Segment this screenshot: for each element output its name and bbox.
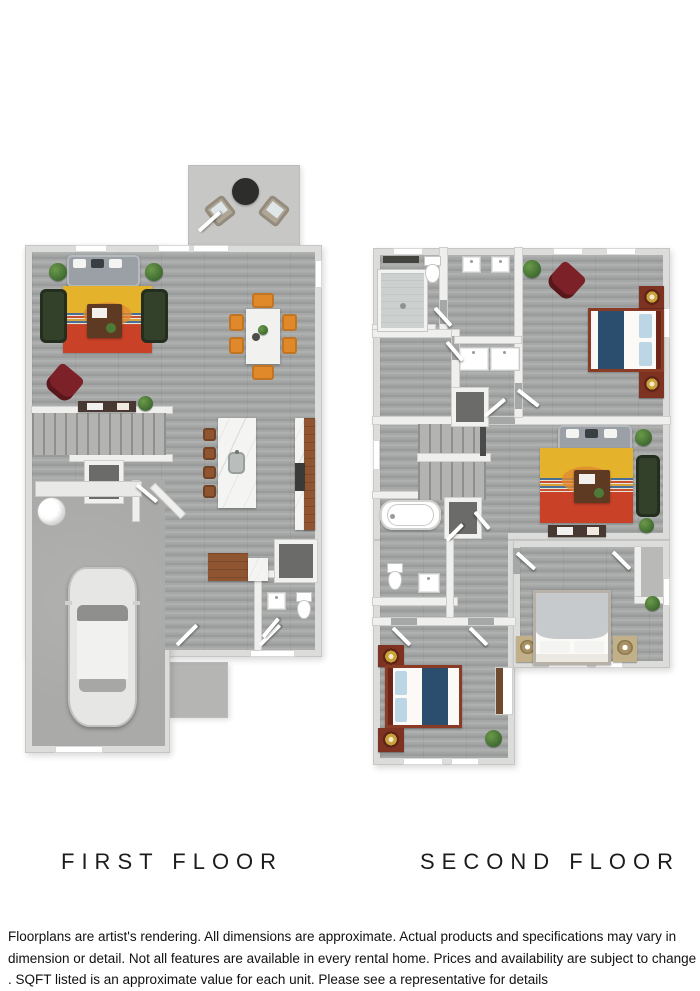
plant <box>635 429 652 446</box>
dining-chair <box>229 314 244 331</box>
window <box>606 248 636 255</box>
pantry <box>275 540 317 582</box>
sofa-pillow <box>91 259 104 268</box>
dryer <box>490 347 520 371</box>
window <box>75 245 107 252</box>
armchair-left <box>40 289 67 343</box>
window <box>315 260 322 288</box>
car-windshield <box>77 605 128 621</box>
bed-pillow <box>540 641 570 653</box>
garage-shelf <box>35 481 142 497</box>
bedroom3-bed <box>385 665 462 728</box>
window <box>553 248 583 255</box>
plant <box>639 518 654 533</box>
plant <box>485 730 502 747</box>
nightstand <box>613 636 637 662</box>
loft-coffee-table <box>574 470 610 503</box>
sofa-pillow <box>73 259 86 268</box>
master-toilet <box>424 256 441 284</box>
kitchen-cabinets <box>304 418 315 530</box>
plant <box>145 263 163 281</box>
living-room-sofa <box>67 255 140 287</box>
disclaimer-text: Floorplans are artist's rendering. All d… <box>8 926 696 991</box>
island-sink <box>228 452 245 474</box>
window <box>403 758 443 765</box>
car <box>68 567 137 727</box>
disclaimer-line-1: Floorplans are artist's rendering. All d… <box>8 926 696 948</box>
disclaimer-line-2: dimension or detail. Not all features ar… <box>8 948 696 970</box>
wall-powder-left <box>255 577 261 650</box>
sofa-pillow <box>109 259 122 268</box>
bathtub <box>380 500 441 530</box>
window <box>663 308 670 338</box>
first-floor-label: FIRST FLOOR <box>61 849 283 875</box>
car-rear-window <box>79 679 126 692</box>
vanity-sink <box>462 256 481 273</box>
wall-hall <box>447 540 453 620</box>
bar-stool <box>203 428 216 441</box>
master-bed <box>588 308 664 372</box>
window <box>663 578 670 606</box>
stair-post <box>480 424 486 456</box>
armchair-right <box>141 289 168 343</box>
bedroom2-bed <box>533 590 611 665</box>
powder-sink <box>267 592 286 610</box>
wall-master-horizontal <box>373 417 670 424</box>
linen-closet-upper <box>452 388 488 426</box>
sofa-pillow <box>604 429 617 438</box>
powder-toilet <box>296 592 312 620</box>
desk-cabinet <box>208 553 248 581</box>
first-floor-plan <box>25 165 322 755</box>
window <box>250 650 295 657</box>
plant <box>523 260 541 278</box>
bed-blanket <box>422 668 448 725</box>
patio-chair-right <box>257 194 291 228</box>
sofa-pillow <box>566 429 579 438</box>
dining-table <box>246 309 280 364</box>
bed-pillow <box>395 671 407 695</box>
table-plant <box>258 325 268 335</box>
walk-in-shower <box>378 270 427 331</box>
bath-counter <box>383 256 419 263</box>
bed-blanket <box>536 593 608 639</box>
bed-headboard <box>656 311 661 369</box>
bed-pillow <box>395 698 407 722</box>
bar-stool <box>203 466 216 479</box>
coffee-table <box>87 304 122 338</box>
opening-bedroom3-door <box>391 618 417 625</box>
car-roof <box>77 621 128 679</box>
toilet-bowl <box>297 600 310 620</box>
plant <box>138 396 153 411</box>
wall-laundry <box>455 337 521 343</box>
second-floor-label: SECOND FLOOR <box>420 849 680 875</box>
patio-door-opening <box>193 245 229 252</box>
bed-blanket <box>598 311 624 369</box>
bar-stool <box>203 485 216 498</box>
hall-bath-sink <box>418 573 440 593</box>
nightstand <box>378 645 404 667</box>
patio-slab <box>188 165 300 247</box>
patio-table <box>232 178 259 205</box>
dining-chair <box>229 337 244 354</box>
toilet-bowl <box>425 264 439 284</box>
loft-console <box>548 525 606 537</box>
vanity-sink <box>491 256 510 273</box>
opening-bedroom3-door2 <box>468 618 494 625</box>
opening-master-door <box>515 383 522 409</box>
window <box>158 245 190 252</box>
front-porch-slab <box>170 662 228 718</box>
garage-window <box>55 746 103 753</box>
plant <box>49 263 67 281</box>
bed-pillow <box>639 342 652 366</box>
window <box>373 440 380 470</box>
car-mirror <box>65 601 72 605</box>
stove <box>295 463 305 491</box>
window <box>393 248 423 255</box>
nightstand <box>639 286 664 308</box>
car-mirror <box>133 601 140 605</box>
staircase <box>32 413 166 455</box>
table-decor <box>252 333 260 341</box>
nightstand <box>639 372 664 398</box>
media-console <box>78 401 136 412</box>
bed-pillow <box>574 641 604 653</box>
second-floor-plan <box>373 248 670 765</box>
bed-headboard <box>536 654 608 662</box>
toilet-bowl <box>388 571 401 591</box>
dining-chair <box>282 337 297 354</box>
closet2-floor <box>641 547 663 597</box>
bed-pillow <box>639 314 652 338</box>
wall-bath2-bottom <box>373 598 457 605</box>
bedroom3-dresser <box>495 667 513 715</box>
bar-stool <box>203 447 216 460</box>
staircase-upper <box>418 424 486 500</box>
window <box>451 758 479 765</box>
bed-headboard <box>388 668 393 725</box>
dining-chair <box>252 365 274 380</box>
dining-chair <box>282 314 297 331</box>
water-heater <box>37 497 66 526</box>
sofa-pillow <box>585 429 598 438</box>
loft-green-sofa <box>636 455 660 517</box>
dining-chair <box>252 293 274 308</box>
kitchen-island <box>218 418 256 508</box>
plant <box>645 596 660 611</box>
desk-counter <box>248 558 268 581</box>
disclaimer-line-3: . SQFT listed is an approximate value fo… <box>8 969 696 991</box>
wall-closet-top <box>373 330 459 337</box>
hall-toilet <box>387 563 403 591</box>
nightstand <box>378 728 404 752</box>
